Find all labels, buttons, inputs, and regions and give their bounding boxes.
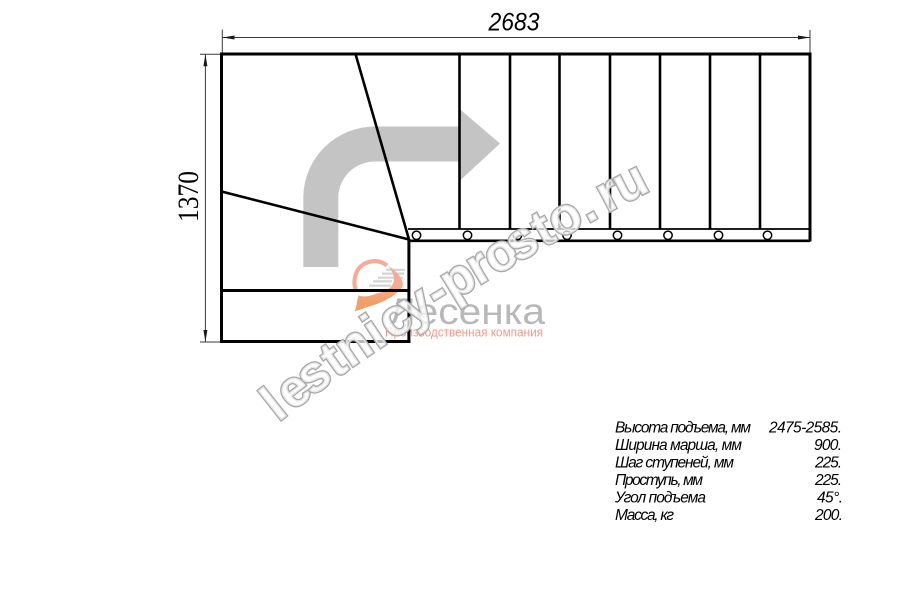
svg-text:Ширина марша, мм: Ширина марша, мм: [615, 437, 742, 454]
svg-text:2683: 2683: [488, 9, 540, 37]
svg-text:Угол подъема: Угол подъема: [614, 489, 706, 506]
svg-text:200.: 200.: [814, 507, 843, 524]
svg-text:Проступь, мм: Проступь, мм: [615, 472, 703, 489]
svg-text:Масса, кг: Масса, кг: [615, 507, 674, 524]
svg-text:45°.: 45°.: [817, 489, 843, 506]
svg-text:225.: 225.: [814, 455, 842, 472]
svg-text:900.: 900.: [814, 437, 842, 454]
svg-text:Высота подъема, мм: Высота подъема, мм: [615, 419, 751, 436]
svg-text:225.: 225.: [814, 472, 842, 489]
svg-text:Шаг ступеней, мм: Шаг ступеней, мм: [615, 455, 734, 472]
svg-text:1370: 1370: [172, 171, 205, 222]
svg-text:2475-2585.: 2475-2585.: [768, 419, 842, 436]
